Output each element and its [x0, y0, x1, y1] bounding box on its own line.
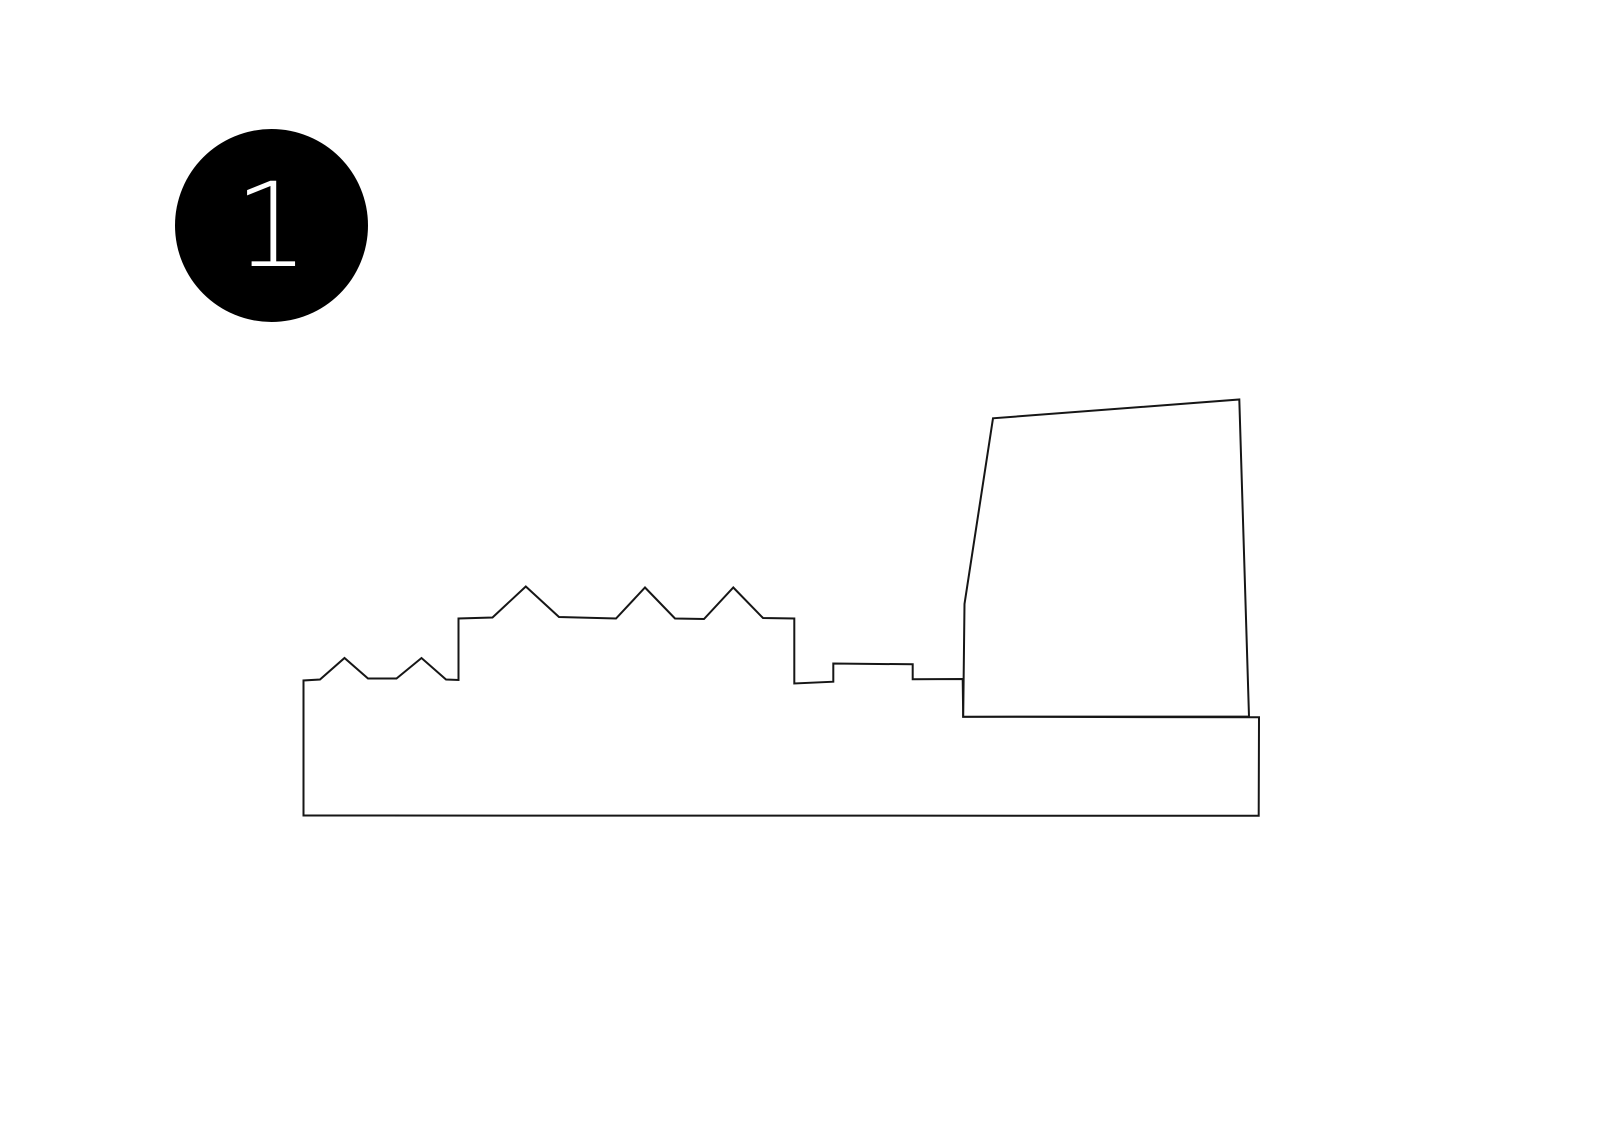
- building-elevation-drawing: [0, 0, 1600, 1131]
- shapes-group: [304, 400, 1260, 816]
- canvas: 1: [0, 0, 1600, 1131]
- tower-block: [963, 400, 1249, 717]
